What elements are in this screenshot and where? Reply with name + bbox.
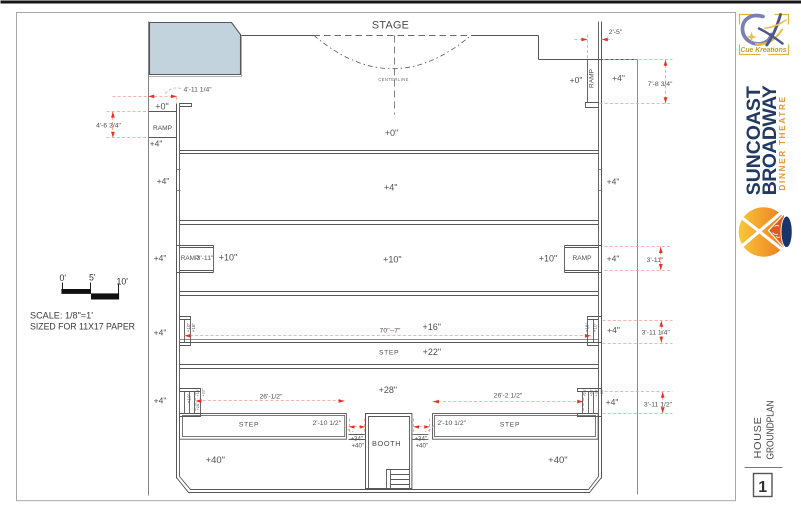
svg-text:0': 0' (60, 273, 67, 283)
svg-text:+0": +0" (385, 128, 398, 138)
svg-text:3'-11": 3'-11" (197, 255, 214, 262)
svg-text:RAMP: RAMP (153, 125, 173, 132)
svg-text:+0": +0" (155, 102, 168, 112)
svg-text:+4": +4" (154, 328, 167, 338)
svg-text:4'-11 1/4": 4'-11 1/4" (184, 87, 213, 94)
svg-text:5': 5' (89, 273, 96, 283)
svg-text:70''--7": 70''--7" (380, 327, 401, 334)
svg-text:+10": +10" (219, 253, 237, 263)
svg-text:GROUNDPLAN: GROUNDPLAN (766, 401, 777, 460)
svg-text:+38": +38" (599, 388, 604, 397)
svg-text:+10": +10" (186, 393, 191, 403)
svg-text:CENTERLINE: CENTERLINE (378, 77, 409, 82)
svg-text:2'-10 1/2": 2'-10 1/2" (312, 420, 341, 427)
svg-text:+34": +34" (414, 435, 427, 442)
svg-text:+34": +34" (594, 388, 599, 397)
svg-text:+22": +22" (200, 388, 205, 397)
svg-text:+4": +4" (607, 254, 620, 264)
svg-text:Cue Kreations: Cue Kreations (741, 47, 787, 54)
svg-text:+4": +4" (154, 396, 167, 406)
svg-text:+4": +4" (606, 397, 619, 407)
svg-text:+4": +4" (384, 183, 397, 193)
svg-text:26'-1/2": 26'-1/2" (260, 393, 284, 400)
svg-text:+40": +40" (548, 455, 568, 466)
svg-text:1: 1 (758, 479, 767, 496)
svg-text:+4": +4" (157, 176, 170, 186)
svg-text:+16": +16" (422, 322, 440, 332)
svg-text:+10": +10" (383, 254, 401, 264)
svg-text:+40": +40" (415, 442, 428, 449)
svg-text:2'-10 1/2": 2'-10 1/2" (437, 420, 466, 427)
svg-text:+4": +4" (154, 253, 167, 263)
svg-text:+28": +28" (582, 388, 587, 397)
svg-text:STEP: STEP (239, 422, 259, 429)
svg-text:STAGE: STAGE (372, 20, 409, 32)
svg-text:+40": +40" (206, 455, 226, 466)
svg-text:7'-8 3/4": 7'-8 3/4" (648, 81, 673, 88)
svg-text:3'-11": 3'-11" (647, 257, 664, 264)
svg-text:+22": +22" (423, 347, 441, 357)
svg-text:STEP: STEP (500, 422, 520, 429)
svg-text:+16": +16" (191, 322, 196, 332)
svg-text:BOOTH: BOOTH (372, 439, 401, 448)
svg-text:HOUSE: HOUSE (753, 417, 764, 459)
svg-text:3'-11 1/4": 3'-11 1/4" (642, 330, 671, 337)
svg-text:10': 10' (116, 277, 128, 287)
svg-text:+40": +40" (351, 442, 364, 449)
svg-text:+0": +0" (570, 75, 583, 85)
svg-text:+4": +4" (612, 73, 625, 83)
svg-text:DINNER THEATRE: DINNER THEATRE (778, 96, 787, 191)
svg-text:SCALE: 1/8"=1': SCALE: 1/8"=1' (30, 311, 93, 321)
svg-text:+4": +4" (607, 325, 620, 335)
svg-text:RAMP: RAMP (572, 255, 592, 262)
svg-text:+30": +30" (588, 388, 593, 397)
svg-text:+28": +28" (379, 385, 397, 395)
svg-text:+4": +4" (607, 177, 620, 187)
svg-text:26'-2 1/2": 26'-2 1/2" (494, 392, 523, 399)
svg-text:+10": +10" (539, 254, 557, 264)
svg-text:+34": +34" (350, 435, 363, 442)
svg-text:2'-5": 2'-5" (609, 29, 623, 36)
svg-text:4'-6 3/4": 4'-6 3/4" (96, 123, 121, 130)
svg-text:RAMP: RAMP (589, 68, 596, 88)
svg-text:+4": +4" (150, 139, 163, 149)
svg-text:STEP: STEP (379, 350, 399, 357)
svg-text:SIZED FOR 11X17 PAPER: SIZED FOR 11X17 PAPER (30, 322, 135, 332)
svg-text:+10": +10" (593, 322, 598, 332)
svg-text:+16": +16" (584, 322, 589, 332)
svg-text:3'-11 1/2": 3'-11 1/2" (644, 402, 673, 409)
